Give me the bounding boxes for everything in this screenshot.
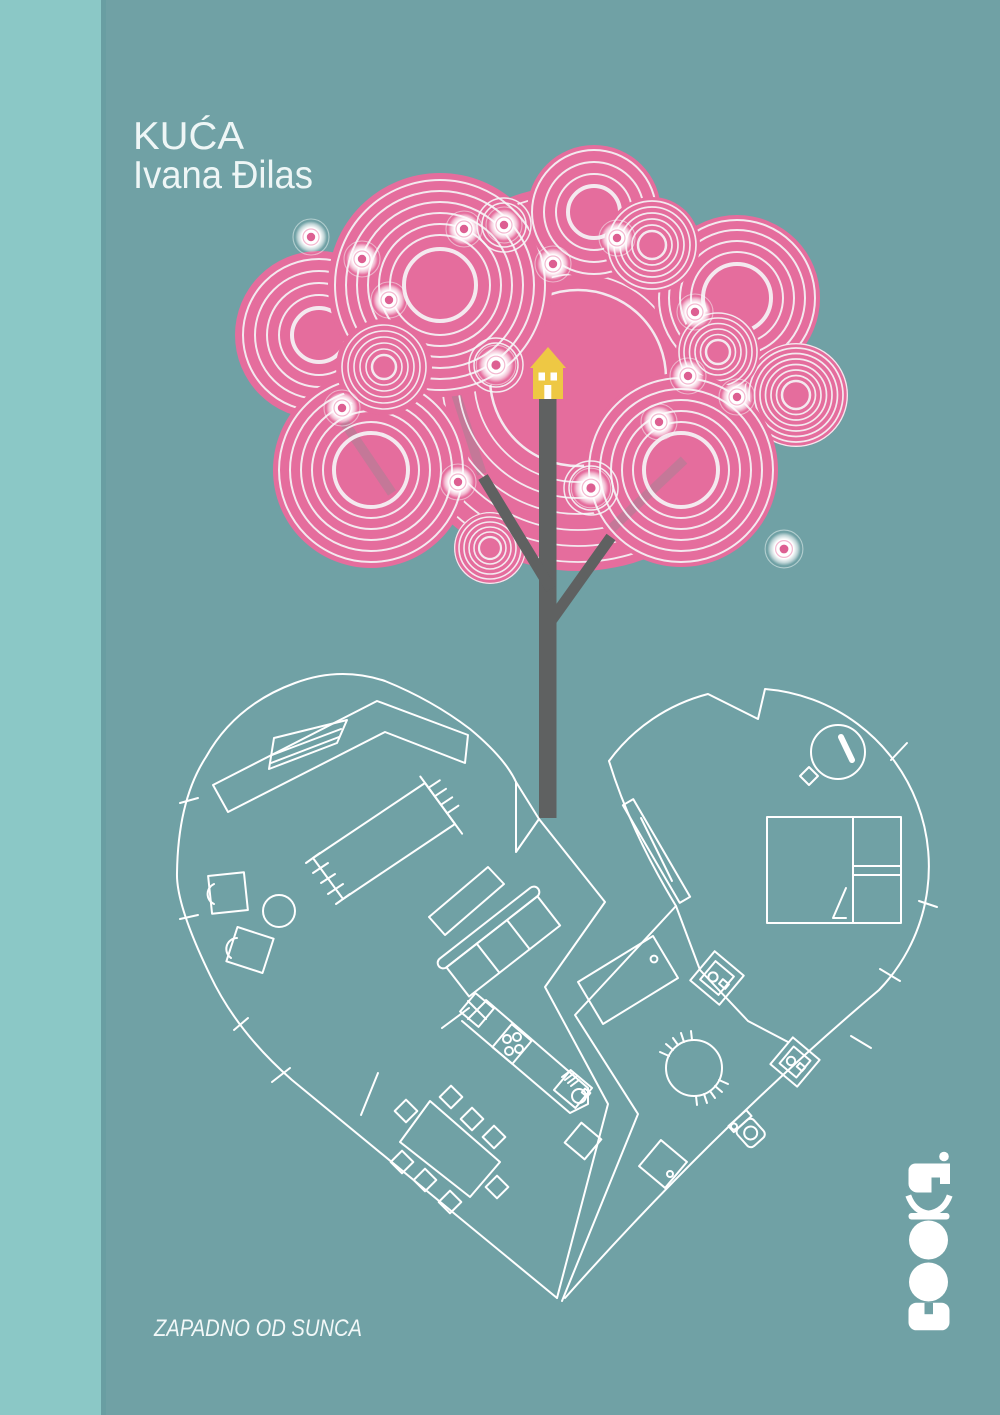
svg-text:Ivana Đilas: Ivana Đilas: [133, 154, 313, 197]
svg-text:ZAPADNO OD SUNCA: ZAPADNO OD SUNCA: [153, 1315, 362, 1342]
svg-text:KUĆA: KUĆA: [133, 115, 244, 158]
